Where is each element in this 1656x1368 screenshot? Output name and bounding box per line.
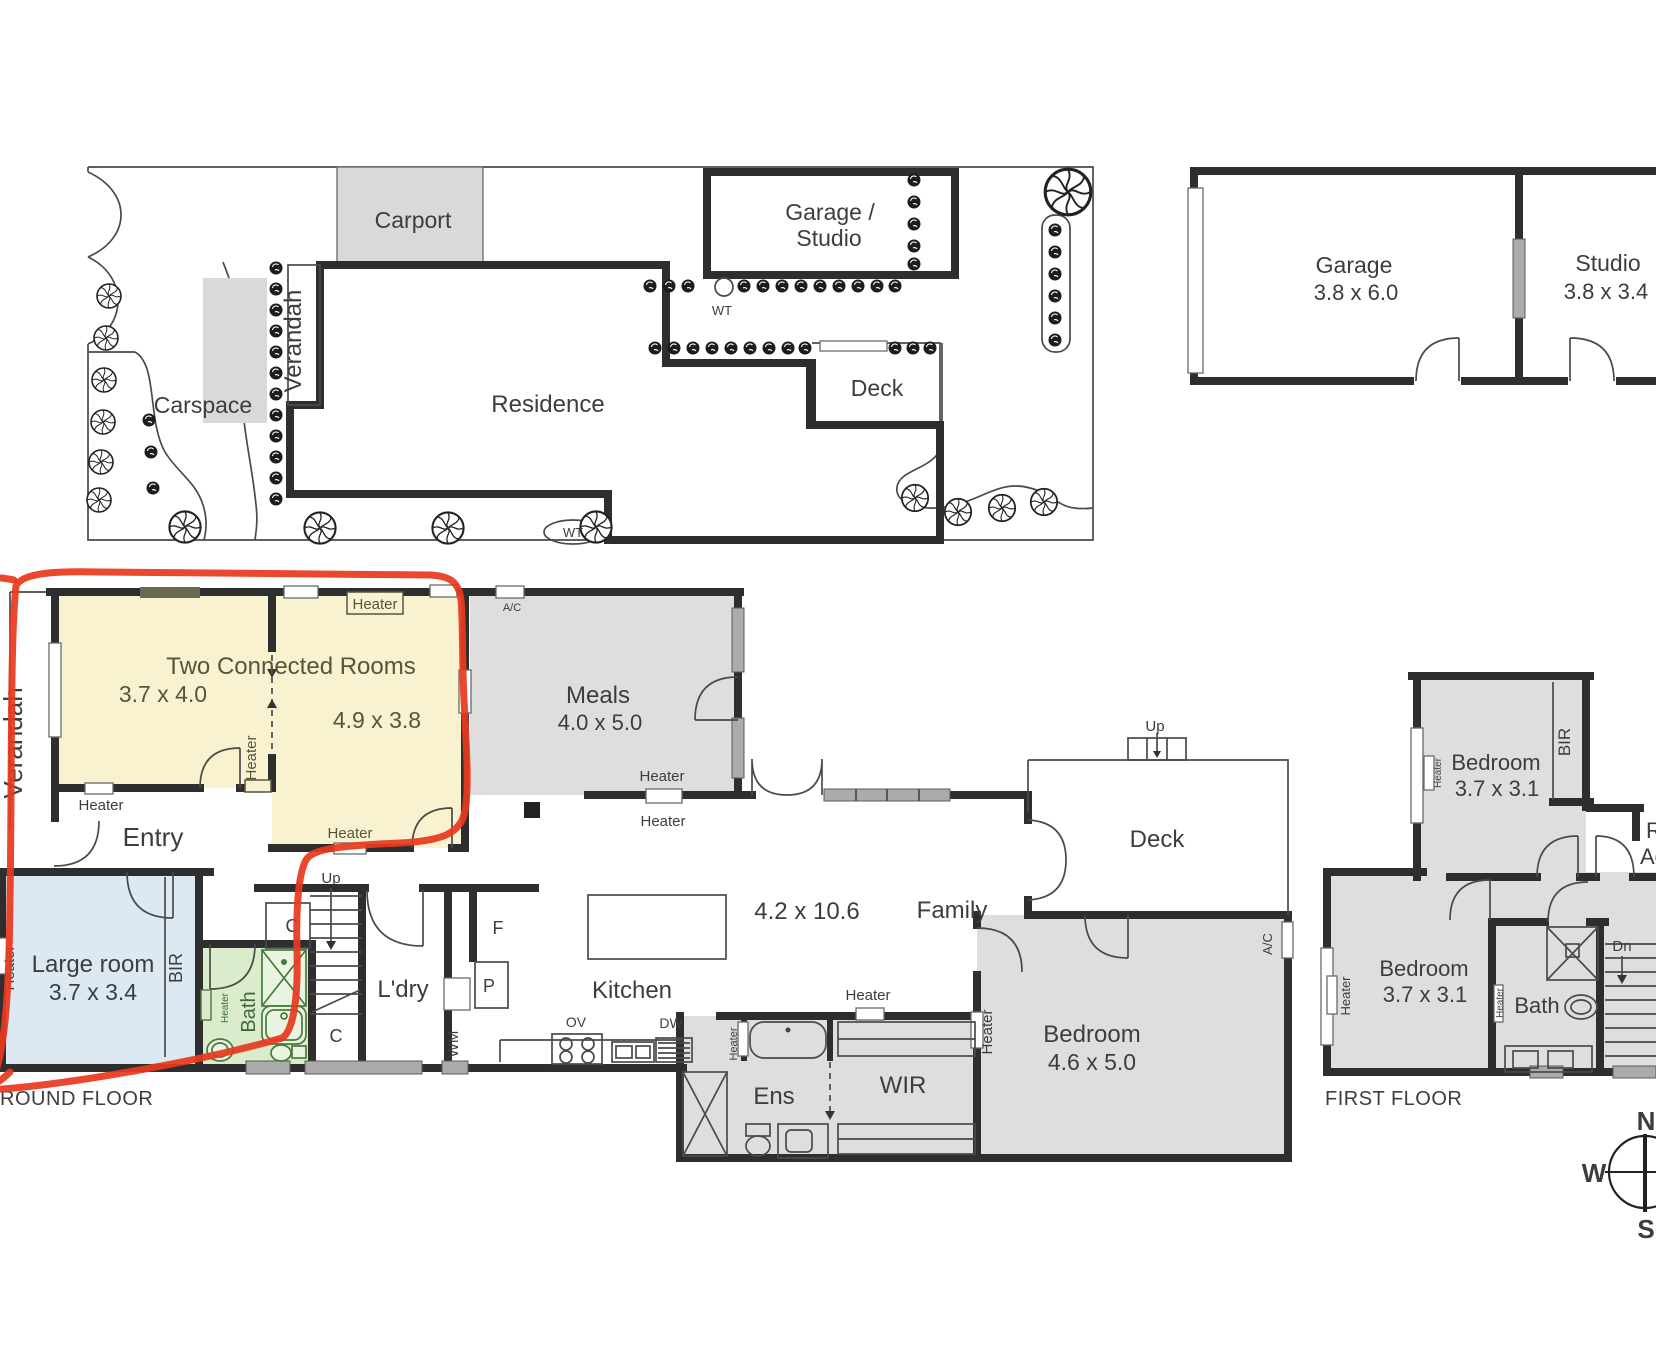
heater-unit xyxy=(856,1008,884,1020)
site-plan: Carport Carspace Verandah Residence Gara… xyxy=(87,167,1093,544)
north-wall-panel xyxy=(140,587,200,598)
label-studio: Studio xyxy=(1575,250,1640,276)
label-heater: Heater xyxy=(243,735,260,780)
label-room-b-dims: 4.9 x 3.8 xyxy=(333,707,421,733)
french-doors-family xyxy=(752,759,822,795)
label-ff-bath: Bath xyxy=(1514,993,1559,1018)
label-wt: WT xyxy=(563,525,583,540)
island-bench xyxy=(588,895,726,959)
pergola xyxy=(820,341,887,351)
label-bir: BIR xyxy=(166,953,186,983)
garage-door-gap xyxy=(1414,373,1461,389)
bath-slider xyxy=(246,1061,290,1074)
residence-outline xyxy=(290,265,940,540)
studio-room xyxy=(1519,171,1656,381)
label-ac: A/C xyxy=(1260,933,1275,955)
window xyxy=(732,718,744,778)
label-kitchen: Kitchen xyxy=(592,977,672,1004)
studio-door-gap xyxy=(1568,373,1616,389)
label-ens: Ens xyxy=(753,1083,794,1110)
heater-unit xyxy=(1327,976,1337,1014)
ground-floor-plan: Verandah Two Connected Rooms 3.7 x 4.0 4… xyxy=(0,585,1293,1158)
label-heater: Heater xyxy=(845,987,890,1004)
label-oven: OV xyxy=(566,1014,587,1030)
first-floor-plan: Bedroom 3.7 x 3.1 BIR Heater Bedroom 3.7… xyxy=(1321,676,1656,1110)
window xyxy=(305,1061,422,1074)
label-bath: Bath xyxy=(238,991,260,1032)
label-roof-access-1: R xyxy=(1646,818,1656,843)
compass-rose: N W S xyxy=(1582,1106,1656,1244)
ground-floor-title: GROUND FLOOR xyxy=(0,1088,153,1110)
ac-unit xyxy=(496,586,524,598)
label-heater: Heater xyxy=(1433,757,1444,788)
door-laundry xyxy=(367,890,423,946)
garage-window xyxy=(1188,188,1203,373)
label-wt: WT xyxy=(712,303,732,318)
label-pantry: P xyxy=(483,976,495,996)
label-garage-studio-1: Garage / xyxy=(785,199,875,225)
ff-door-roof-access xyxy=(1596,836,1634,877)
french-doors-deck xyxy=(1028,820,1066,900)
label-site-deck: Deck xyxy=(851,375,904,401)
label-bedroom: Bedroom xyxy=(1043,1021,1140,1048)
label-dishwasher: DW xyxy=(659,1015,683,1031)
window xyxy=(732,608,744,672)
window xyxy=(284,586,318,598)
label-roof-access-2: Ac xyxy=(1640,844,1656,869)
window xyxy=(49,643,61,737)
sink xyxy=(612,1042,654,1062)
label-two-connected-rooms: Two Connected Rooms xyxy=(166,653,415,680)
label-carspace: Carspace xyxy=(154,392,252,418)
label-heater: Heater xyxy=(640,813,685,830)
label-large-room: Large room xyxy=(32,951,155,978)
label-ac: A/C xyxy=(503,602,521,614)
first-floor-title: FIRST FLOOR xyxy=(1325,1088,1462,1110)
label-large-room-dims: 3.7 x 3.4 xyxy=(49,979,137,1005)
label-up: Up xyxy=(1145,718,1164,735)
label-south: S xyxy=(1637,1214,1654,1244)
heater-unit xyxy=(646,789,682,803)
label-laundry: L'dry xyxy=(377,976,428,1003)
label-entry: Entry xyxy=(123,822,184,852)
ac-unit xyxy=(1282,922,1293,958)
label-wm: WM xyxy=(445,1031,462,1058)
floorplan-drawing: Carport Carspace Verandah Residence Gara… xyxy=(0,0,1656,1368)
label-carport: Carport xyxy=(375,207,452,233)
label-deck: Deck xyxy=(1130,826,1186,853)
water-tank-icon xyxy=(715,278,733,296)
label-wir: WIR xyxy=(880,1072,927,1099)
label-meals: Meals xyxy=(566,682,630,709)
label-bedroom-dims: 4.6 x 5.0 xyxy=(1048,1049,1136,1075)
label-ff-bedroom-dims: 3.7 x 3.1 xyxy=(1455,776,1539,801)
label-heater: Heater xyxy=(327,825,372,842)
label-heater: Heater xyxy=(352,596,397,613)
label-family-dims: 4.2 x 10.6 xyxy=(754,898,859,925)
label-site-verandah: Verandah xyxy=(280,290,307,393)
divider-window xyxy=(1513,239,1525,318)
label-north: N xyxy=(1637,1106,1656,1136)
door-entry xyxy=(54,821,99,866)
label-meals-dims: 4.0 x 5.0 xyxy=(558,710,642,735)
stairs-up[interactable] xyxy=(310,896,362,1014)
label-ff-bir: BIR xyxy=(1555,728,1574,756)
label-heater: Heater xyxy=(78,797,123,814)
label-studio-dims: 3.8 x 3.4 xyxy=(1564,279,1648,304)
window xyxy=(442,1061,468,1074)
label-garage-dims: 3.8 x 6.0 xyxy=(1314,280,1398,305)
label-heater: Heater xyxy=(979,1009,996,1054)
post xyxy=(524,802,540,818)
label-family: Family xyxy=(917,897,988,924)
window xyxy=(1613,1066,1656,1078)
driveway-crossover xyxy=(88,172,121,344)
stairs-arrow xyxy=(326,941,336,950)
label-heater: Heater xyxy=(639,768,684,785)
label-ff-bedroom2: Bedroom xyxy=(1379,956,1468,981)
label-heater: Heater xyxy=(1338,976,1353,1016)
outbuilding-plan: Garage 3.8 x 6.0 Studio 3.8 x 3.4 xyxy=(1188,171,1656,389)
label-ff-bedroom2-dims: 3.7 x 3.1 xyxy=(1383,982,1467,1007)
label-residence: Residence xyxy=(491,391,604,418)
label-room-a-dims: 3.7 x 4.0 xyxy=(119,681,207,707)
label-ff-bedroom: Bedroom xyxy=(1451,750,1540,775)
label-heater: Heater xyxy=(220,992,231,1023)
heater-unit xyxy=(245,780,271,792)
label-west: W xyxy=(1582,1158,1607,1188)
laundry-trough xyxy=(444,978,470,1010)
label-dn: Dn xyxy=(1612,938,1631,955)
heater-unit xyxy=(201,990,211,1020)
label-up: Up xyxy=(321,870,340,887)
cooktop xyxy=(552,1034,602,1064)
window xyxy=(1411,728,1423,823)
label-heater: Heater xyxy=(728,1027,740,1060)
heater-unit xyxy=(85,783,113,794)
label-garage-studio-2: Studio xyxy=(796,225,861,251)
label-cupboard: C xyxy=(330,1026,343,1046)
label-heater: Heater xyxy=(1495,987,1506,1018)
label-garage: Garage xyxy=(1316,252,1393,278)
steps-arrow xyxy=(1153,751,1161,758)
label-fridge: F xyxy=(493,918,504,938)
floorplan-page: Carport Carspace Verandah Residence Gara… xyxy=(0,0,1656,1368)
